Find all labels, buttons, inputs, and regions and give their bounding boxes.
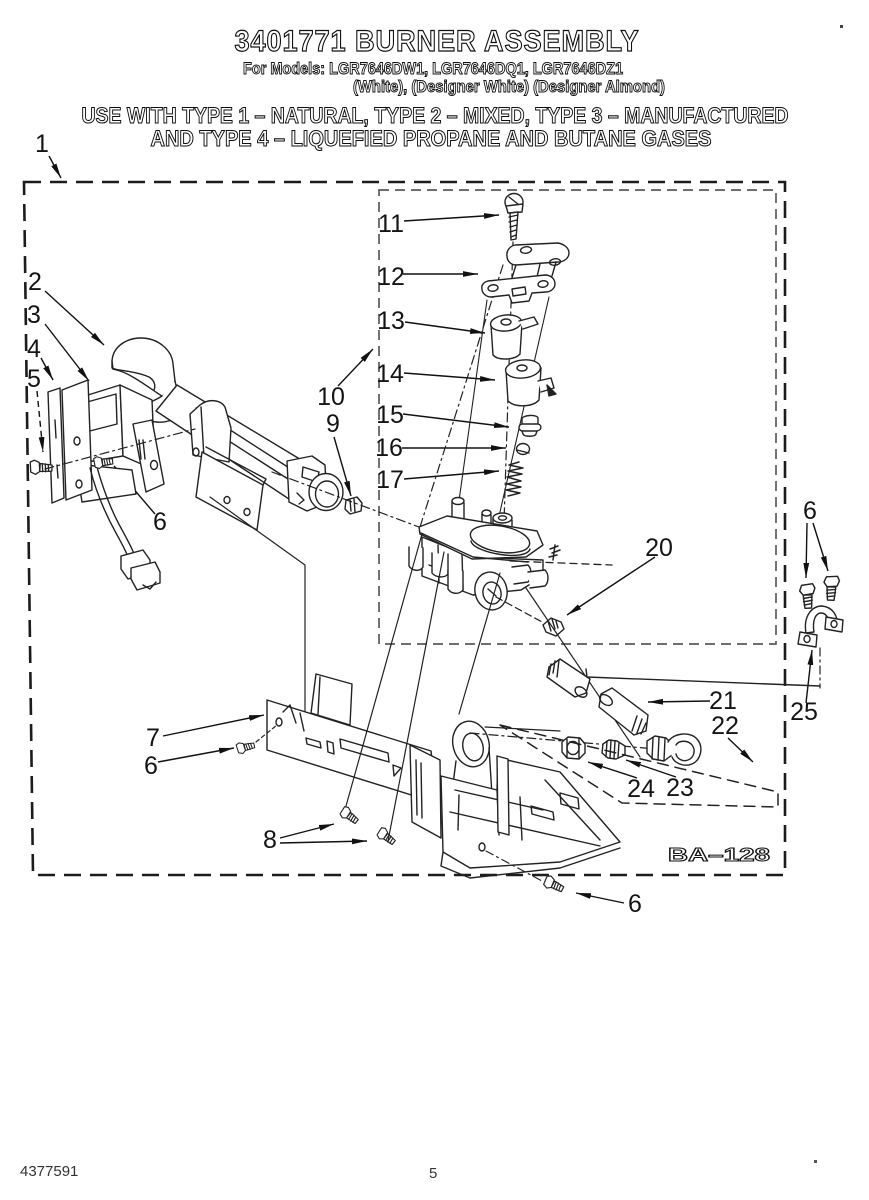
svg-text:For Models: LGR7646DW1, LGR764: For Models: LGR7646DW1, LGR7646DQ1, LGR7… (243, 59, 623, 78)
svg-text:AND TYPE 4 – LIQUEFIED PROPANE: AND TYPE 4 – LIQUEFIED PROPANE AND BUTAN… (151, 126, 712, 151)
svg-text:7: 7 (146, 724, 160, 752)
svg-text:12: 12 (377, 263, 405, 291)
svg-text:24: 24 (627, 775, 655, 803)
svg-text:3: 3 (27, 301, 41, 329)
svg-text:15: 15 (376, 401, 404, 429)
svg-text:6: 6 (803, 497, 817, 525)
svg-text:(White), (Designer White) (Des: (White), (Designer White) (Designer Almo… (353, 77, 665, 96)
svg-text:6: 6 (153, 508, 167, 536)
svg-text:22: 22 (711, 712, 739, 740)
svg-text:USE WITH TYPE 1 – NATURAL, TYP: USE WITH TYPE 1 – NATURAL, TYPE 2 – MIXE… (82, 103, 789, 128)
svg-text:20: 20 (645, 534, 673, 562)
svg-text:25: 25 (790, 698, 818, 726)
svg-text:6: 6 (628, 890, 642, 918)
svg-text:1: 1 (35, 130, 49, 158)
svg-text:11: 11 (378, 210, 404, 238)
svg-text:23: 23 (666, 774, 694, 802)
svg-text:3401771 BURNER ASSEMBLY: 3401771 BURNER ASSEMBLY (235, 25, 640, 58)
svg-text:9: 9 (326, 410, 340, 438)
svg-text:8: 8 (263, 826, 277, 854)
svg-text:16: 16 (375, 434, 403, 462)
svg-text:2: 2 (28, 268, 42, 296)
svg-text:4: 4 (27, 335, 41, 363)
svg-text:5: 5 (27, 365, 41, 393)
svg-text:17: 17 (376, 466, 404, 494)
svg-text:4377591: 4377591 (20, 1163, 78, 1180)
svg-text:10: 10 (317, 383, 345, 411)
svg-text:6: 6 (144, 752, 158, 780)
svg-text:BA–128: BA–128 (668, 845, 770, 865)
svg-text:21: 21 (709, 687, 737, 715)
svg-text:5: 5 (429, 1165, 437, 1182)
svg-text:14: 14 (376, 360, 404, 388)
svg-text:13: 13 (377, 307, 405, 335)
